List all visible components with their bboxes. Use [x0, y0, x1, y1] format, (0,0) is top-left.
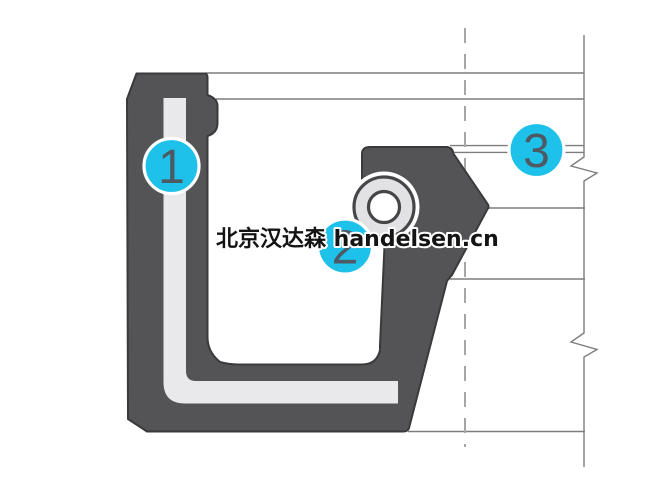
- diagram-canvas: 1 3 2 北京汉达森 handelsen.cn: [0, 0, 655, 500]
- callout-3-number: 3: [523, 125, 550, 178]
- callout-1-number: 1: [158, 141, 185, 194]
- garter-spring-bore: [369, 192, 400, 223]
- callout-3-marker: 3: [509, 123, 564, 179]
- callout-1-marker: 1: [144, 139, 199, 195]
- watermark-text: 北京汉达森 handelsen.cn: [216, 226, 499, 252]
- shaft-edge-line-with-breaks: [571, 35, 597, 467]
- diagram-stage: 1 3 2 北京汉达森 handelsen.cn: [0, 0, 655, 500]
